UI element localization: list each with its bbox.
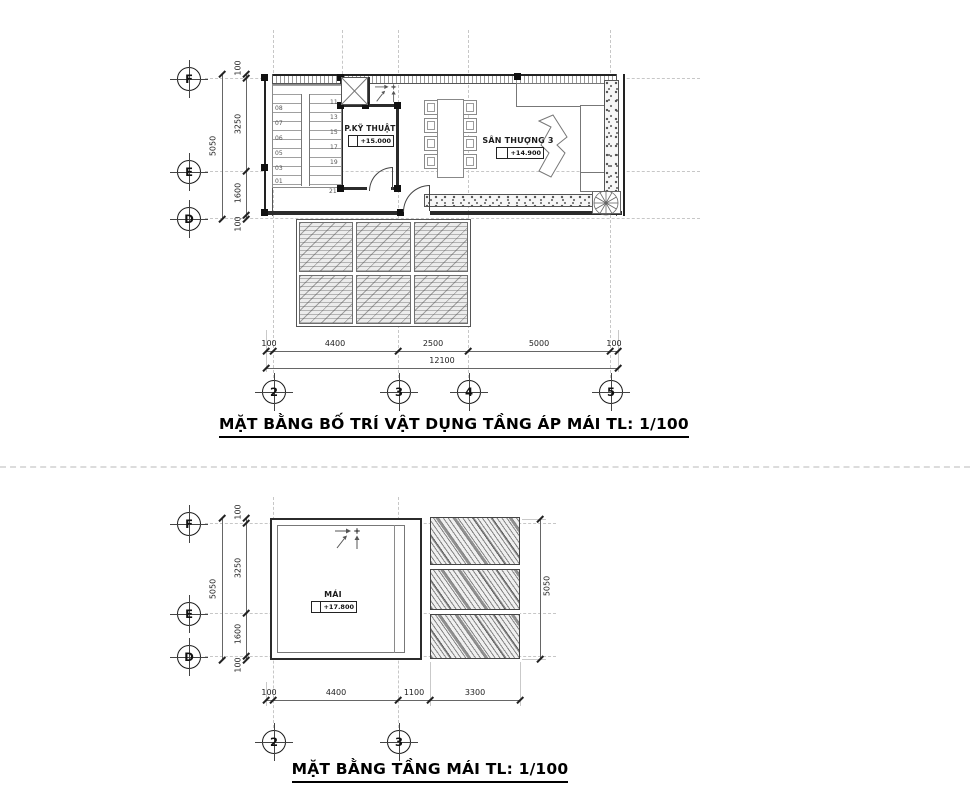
slope-arrow-icon (333, 524, 363, 550)
plant-icon (591, 189, 621, 217)
roof-panel (356, 222, 410, 272)
roof-panel (414, 222, 468, 272)
roof-panel (299, 222, 353, 272)
dimension-line-total (266, 368, 618, 369)
dim-text-total: 5050 (209, 136, 218, 156)
chair (424, 100, 438, 115)
level-marker-roof: +17.800 (311, 601, 357, 613)
hatched-roof-panels (430, 517, 520, 659)
stair-number: 07 (275, 121, 283, 127)
grid-bubble-3: 3 (387, 730, 411, 754)
lower-roof-hatch (296, 219, 471, 327)
roof-gutter-line (394, 525, 395, 653)
dim-text: 3300 (465, 688, 485, 697)
stair-number: 06 (275, 136, 283, 142)
chair (424, 136, 438, 151)
room-label-roof: MÁI (324, 590, 342, 599)
chair (463, 136, 477, 151)
dim-text: 2500 (423, 339, 443, 348)
extension-line (522, 519, 546, 520)
column (261, 74, 268, 81)
door-leaf (429, 185, 430, 211)
grid-bubble-E: E (177, 160, 201, 184)
room-label-technical: P.KỸ THUẬT (344, 124, 395, 133)
dim-text-total: 12100 (429, 356, 454, 365)
roof-panel (414, 275, 468, 325)
door-leaf (392, 167, 393, 190)
crossed-skylight-icon (341, 77, 368, 105)
wall-room-right (396, 104, 399, 190)
dim-tick (218, 215, 225, 222)
column (261, 164, 268, 171)
planter-bottom (424, 194, 607, 207)
extension-line (522, 659, 546, 660)
column (337, 185, 344, 192)
stair-number: 15 (330, 130, 338, 136)
dim-text: 5000 (529, 339, 549, 348)
chair (463, 118, 477, 133)
dim-text-total: 5050 (209, 579, 218, 599)
dimension-line (222, 518, 223, 660)
grid-bubble-D: D (177, 207, 201, 231)
wall-bottom (264, 211, 622, 215)
level-value: +17.800 (321, 603, 356, 611)
stair-number: 19 (330, 160, 338, 166)
stair-rail (301, 94, 310, 186)
level-value: +15.000 (358, 137, 393, 145)
chair (463, 100, 477, 115)
level-marker-terrace: +14.900 (496, 147, 544, 159)
column (394, 102, 401, 109)
plan2-title: MẶT BẰNG TẦNG MÁI TL: 1/100 (230, 759, 630, 783)
dim-text: 100 (234, 504, 243, 519)
roof-panel (356, 275, 410, 325)
grid-bubble-3: 3 (387, 380, 411, 404)
grid-bubble-D: D (177, 645, 201, 669)
stair-number: 17 (330, 145, 338, 151)
roof-panel (299, 275, 353, 325)
dim-text: 1600 (234, 183, 243, 203)
slope-arrow-icon (373, 81, 399, 103)
stair-number: 05 (275, 151, 283, 157)
dim-text: 100 (234, 60, 243, 75)
dim-text: 4400 (325, 339, 345, 348)
dim-text: 100 (234, 216, 243, 231)
dim-text-total: 5050 (543, 576, 552, 596)
level-marker-cell (349, 136, 358, 146)
grid-bubble-F: F (177, 67, 201, 91)
grid-line-aux (342, 30, 343, 74)
column (394, 185, 401, 192)
grid-bubble-2: 2 (262, 380, 286, 404)
chair (424, 154, 438, 169)
grid-bubble-2: 2 (262, 730, 286, 754)
column (514, 73, 521, 80)
stair-number: 21 (329, 189, 337, 195)
dining-table (437, 99, 464, 178)
level-marker-cell (312, 602, 321, 612)
plan1-title: MẶT BẰNG BỐ TRÍ VẬT DỤNG TẦNG ÁP MÁI TL:… (219, 414, 659, 438)
room-label-terrace: SÂN THƯỢNG 3 (482, 136, 553, 145)
dimension-line (246, 518, 247, 660)
dim-text: 1100 (404, 688, 424, 697)
stair-number: 08 (275, 106, 283, 112)
grid-bubble-E: E (177, 602, 201, 626)
stair-number: 11 (330, 100, 338, 106)
dimension-line (266, 351, 618, 352)
dimension-line (266, 700, 520, 701)
sheet-separator (0, 466, 970, 468)
drawing-sheet: F E D 08 07 06 05 03 01 11 13 15 17 19 2… (0, 0, 970, 800)
dim-text: 100 (234, 657, 243, 672)
stair-number: 03 (275, 166, 283, 172)
stair-number: 13 (330, 115, 338, 121)
dim-text: 3250 (234, 114, 243, 134)
dim-text: 3250 (234, 558, 243, 578)
level-value: +14.900 (508, 149, 543, 157)
grid-bubble-4: 4 (457, 380, 481, 404)
chair (463, 154, 477, 169)
dimension-line (246, 74, 247, 219)
roof-panel (430, 569, 520, 610)
grid-bubble-F: F (177, 512, 201, 536)
stair-number: 01 (275, 179, 283, 185)
dim-text: 4400 (326, 688, 346, 697)
dimension-line (222, 74, 223, 219)
chair (424, 118, 438, 133)
counter-right (580, 105, 606, 174)
dim-text: 1600 (234, 624, 243, 644)
planter-right (604, 80, 619, 195)
counter-top (516, 83, 606, 107)
grid-bubble-5: 5 (599, 380, 623, 404)
roof-panel (430, 517, 520, 565)
dimension-line (540, 519, 541, 660)
column (261, 209, 268, 216)
dim-tick (218, 656, 225, 663)
door-swing-icon (403, 185, 430, 212)
level-marker-technical: +15.000 (348, 135, 394, 147)
level-marker-cell (497, 148, 508, 158)
roof-panel (430, 614, 520, 659)
